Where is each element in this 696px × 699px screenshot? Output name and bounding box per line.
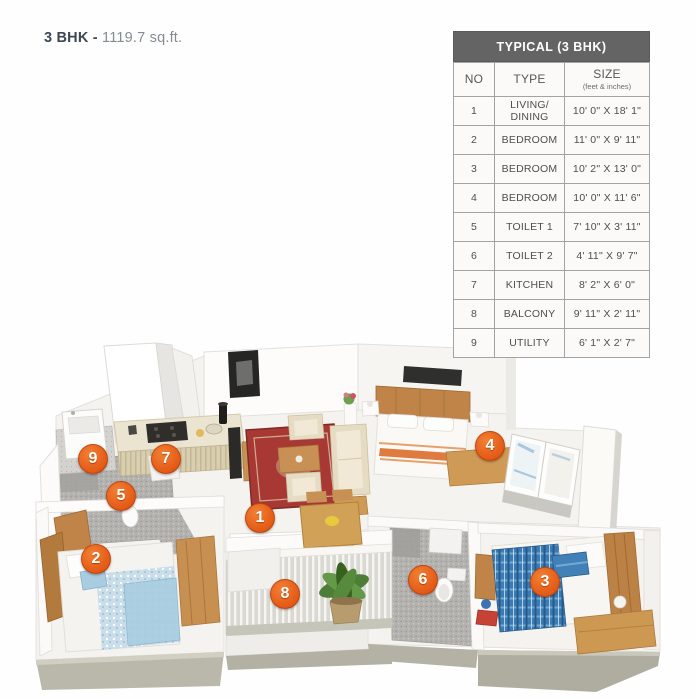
cell-type: BALCONY [495, 300, 565, 329]
bw-wall-art [228, 350, 260, 398]
table-title: TYPICAL (3 BHK) [453, 31, 650, 62]
floor-plan-page: 3 BHK - 1119.7 sq.ft. [0, 0, 696, 699]
cell-no: 4 [454, 184, 495, 213]
cell-size: 10' 2" X 13' 0" [565, 155, 650, 184]
cell-type: TOILET 2 [495, 242, 565, 271]
marker-number: 8 [281, 585, 290, 603]
cell-type: TOILET 1 [495, 213, 565, 242]
cell-type: LIVING/ DINING [495, 97, 565, 126]
cell-size: 8' 2" X 6' 0" [565, 271, 650, 300]
marker-number: 6 [419, 571, 428, 589]
bedroom3-bench [574, 610, 656, 654]
col-header-no: NO [454, 63, 495, 97]
cell-size: 9' 11" X 2' 11" [565, 300, 650, 329]
table-row: 3 BEDROOM 10' 2" X 13' 0" [454, 155, 650, 184]
room-marker-balcony: 8 [270, 579, 300, 609]
cell-size: 11' 0" X 9' 11" [565, 126, 650, 155]
cell-no: 5 [454, 213, 495, 242]
coffee-table [278, 445, 320, 473]
table-row: 8 BALCONY 9' 11" X 2' 11" [454, 300, 650, 329]
cell-size: 7' 10" X 3' 11" [565, 213, 650, 242]
room-marker-bedroom-4: 4 [475, 431, 505, 461]
cell-type: BEDROOM [495, 126, 565, 155]
table-row: 4 BEDROOM 10' 0" X 11' 6" [454, 184, 650, 213]
table-row: 5 TOILET 1 7' 10" X 3' 11" [454, 213, 650, 242]
table-row: 2 BEDROOM 11' 0" X 9' 11" [454, 126, 650, 155]
marker-number: 7 [162, 450, 171, 468]
cell-type: KITCHEN [495, 271, 565, 300]
cell-no: 6 [454, 242, 495, 271]
table-row: 1 LIVING/ DINING 10' 0" X 18' 1" [454, 97, 650, 126]
marker-number: 2 [92, 550, 101, 568]
bedroom2-bed [58, 542, 180, 652]
marker-number: 1 [256, 509, 265, 527]
cell-type: BEDROOM [495, 155, 565, 184]
cell-type: BEDROOM [495, 184, 565, 213]
col-header-size-label: SIZE [593, 67, 620, 81]
room-marker-utility: 9 [78, 444, 108, 474]
room-marker-toilet-1: 5 [106, 481, 136, 511]
cell-size: 4' 11" X 9' 7" [565, 242, 650, 271]
marker-number: 3 [541, 573, 550, 591]
cell-type: UTILITY [495, 329, 565, 358]
cell-no: 3 [454, 155, 495, 184]
cell-no: 8 [454, 300, 495, 329]
room-marker-toilet-2: 6 [408, 565, 438, 595]
cell-no: 1 [454, 97, 495, 126]
cell-size: 6' 1" X 2' 7" [565, 329, 650, 358]
table-row: 6 TOILET 2 4' 11" X 9' 7" [454, 242, 650, 271]
cell-no: 2 [454, 126, 495, 155]
room-marker-bedroom-2: 2 [81, 544, 111, 574]
table-row: 7 KITCHEN 8' 2" X 6' 0" [454, 271, 650, 300]
cell-no: 7 [454, 271, 495, 300]
table-header-row: NO TYPE SIZE (feet & inches) [454, 63, 650, 97]
sofa [330, 424, 370, 496]
cell-size: 10' 0" X 11' 6" [565, 184, 650, 213]
table-row: 9 UTILITY 6' 1" X 2' 7" [454, 329, 650, 358]
cell-no: 9 [454, 329, 495, 358]
col-header-size: SIZE (feet & inches) [565, 63, 650, 97]
room-size-table: TYPICAL (3 BHK) NO TYPE SIZE (feet & inc… [453, 31, 650, 358]
room-marker-bedroom-3: 3 [530, 567, 560, 597]
marker-number: 9 [89, 450, 98, 468]
room-marker-kitchen: 7 [151, 444, 181, 474]
col-header-size-unit: (feet & inches) [565, 82, 649, 91]
col-header-type: TYPE [495, 63, 565, 97]
armchair-top [288, 414, 324, 440]
flower-vase [344, 393, 358, 430]
cell-size: 10' 0" X 18' 1" [565, 97, 650, 126]
marker-number: 5 [117, 487, 126, 505]
marker-number: 4 [486, 437, 495, 455]
room-marker-living-dining: 1 [245, 503, 275, 533]
